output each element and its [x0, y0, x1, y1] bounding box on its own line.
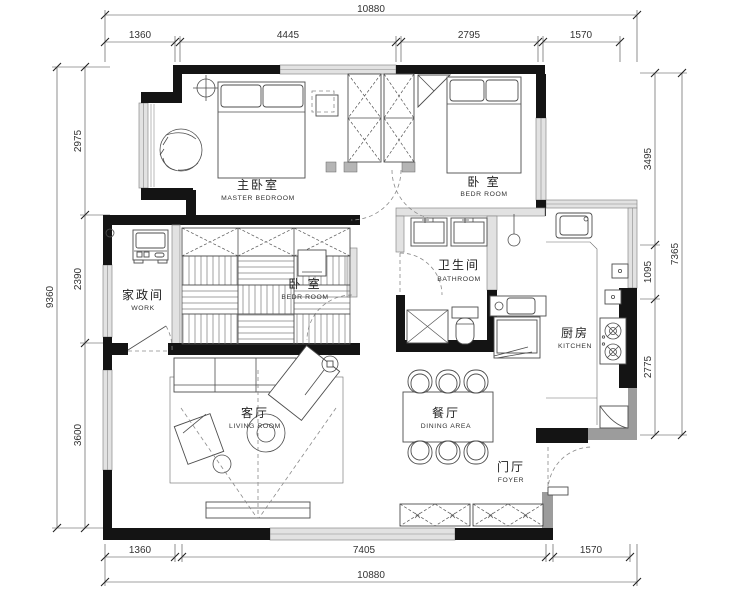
dim-right-seg-3: 2775 [643, 355, 654, 378]
dim-top-seg-4: 1570 [570, 30, 593, 41]
ottoman [213, 455, 231, 473]
work-room-fixtures [106, 229, 168, 263]
kitchen-label-zh: 厨房 [561, 325, 589, 340]
hall-wardrobes [348, 74, 414, 162]
kitchen-corner-cabinet [600, 406, 628, 428]
dim-left-seg-2: 2390 [73, 267, 84, 290]
nightstand [316, 95, 338, 116]
dim-bottom-seg-2: 7405 [353, 545, 376, 556]
bathroom-door-arc [400, 253, 442, 295]
dim-top-seg-3: 2795 [458, 30, 481, 41]
dim-bottom-seg-3: 1570 [580, 545, 603, 556]
bathroom-label-en: BATHROOM [437, 276, 481, 283]
bedroom-top-label-zh: 卧 室 [467, 174, 500, 189]
dim-bottom-overall: 10880 [357, 570, 385, 581]
dim-right-seg-1: 3495 [643, 147, 654, 170]
dim-top-seg-1: 1360 [129, 30, 152, 41]
fridge-icon [494, 317, 540, 358]
foyer-label-en: FOYER [498, 477, 524, 484]
dim-left-seg-1: 2975 [73, 129, 84, 152]
dim-bottom-seg-1: 1360 [129, 545, 152, 556]
toilet-icon [452, 307, 478, 344]
dimensions-right: 3495 1095 2775 7365 [640, 69, 687, 439]
living-room-furniture [170, 346, 343, 518]
dimensions-top: 10880 1360 4445 2795 1570 [101, 4, 641, 62]
stove-icon [600, 318, 626, 364]
foyer-door-post [542, 492, 553, 528]
dim-top-seg-2: 4445 [277, 30, 300, 41]
dim-right-overall: 7365 [670, 242, 681, 265]
shoe-cabinet [400, 504, 470, 526]
dim-left-overall: 9360 [45, 285, 56, 308]
bedroom-mid-label-zh: 卧 室 [288, 276, 321, 291]
dim-left-seg-3: 3600 [73, 423, 84, 446]
wall-bathroom-north [396, 208, 545, 216]
dining-area-label-en: DINING AREA [421, 423, 471, 430]
master-bedroom-label-zh: 主卧室 [237, 177, 279, 192]
master-bedroom-door-arc [351, 170, 401, 220]
floor-plan-canvas: 10880 1360 4445 2795 1570 1360 7405 1570 [0, 0, 740, 600]
foyer-fixtures [400, 504, 543, 526]
bathroom-label-zh: 卫生间 [438, 258, 480, 272]
kitchen-label-en: KITCHEN [558, 343, 592, 350]
wall-living-north [168, 343, 360, 355]
bedroom-mid-label-en: BEDR ROOM [281, 294, 328, 301]
living-room-label-en: LIVING ROOM [229, 423, 281, 430]
bedroom-top-furniture [418, 75, 521, 173]
bedroom-mid-furniture [182, 228, 350, 344]
work-room-label-zh: 家政间 [122, 287, 164, 302]
floor-plan-drawing: 10880 1360 4445 2795 1570 1360 7405 1570 [0, 0, 740, 600]
bedroom-top-label-en: BEDR ROOM [460, 191, 507, 198]
living-room-label-zh: 客厅 [241, 405, 269, 420]
work-door-leaf [128, 326, 166, 350]
shoe-cabinet [473, 504, 543, 526]
wall-bedrooms-north [103, 215, 360, 225]
foyer-label-zh: 门厅 [497, 459, 525, 474]
master-bedroom-furniture [160, 75, 338, 178]
wall-work-divider [172, 225, 180, 347]
dining-area-label-zh: 餐厅 [432, 405, 460, 420]
chaise-lounge [268, 346, 339, 421]
work-room-label-en: WORK [131, 305, 155, 312]
dimensions-bottom: 1360 7405 1570 10880 [101, 544, 641, 586]
dim-top-overall: 10880 [357, 4, 385, 15]
master-bedroom-label-en: MASTER BEDROOM [221, 195, 295, 202]
entry-door-panel [548, 487, 568, 495]
entry-door-arc [548, 447, 592, 491]
dim-right-seg-2: 1095 [643, 260, 654, 283]
dimensions-left: 9360 2975 2390 3600 [45, 63, 110, 532]
